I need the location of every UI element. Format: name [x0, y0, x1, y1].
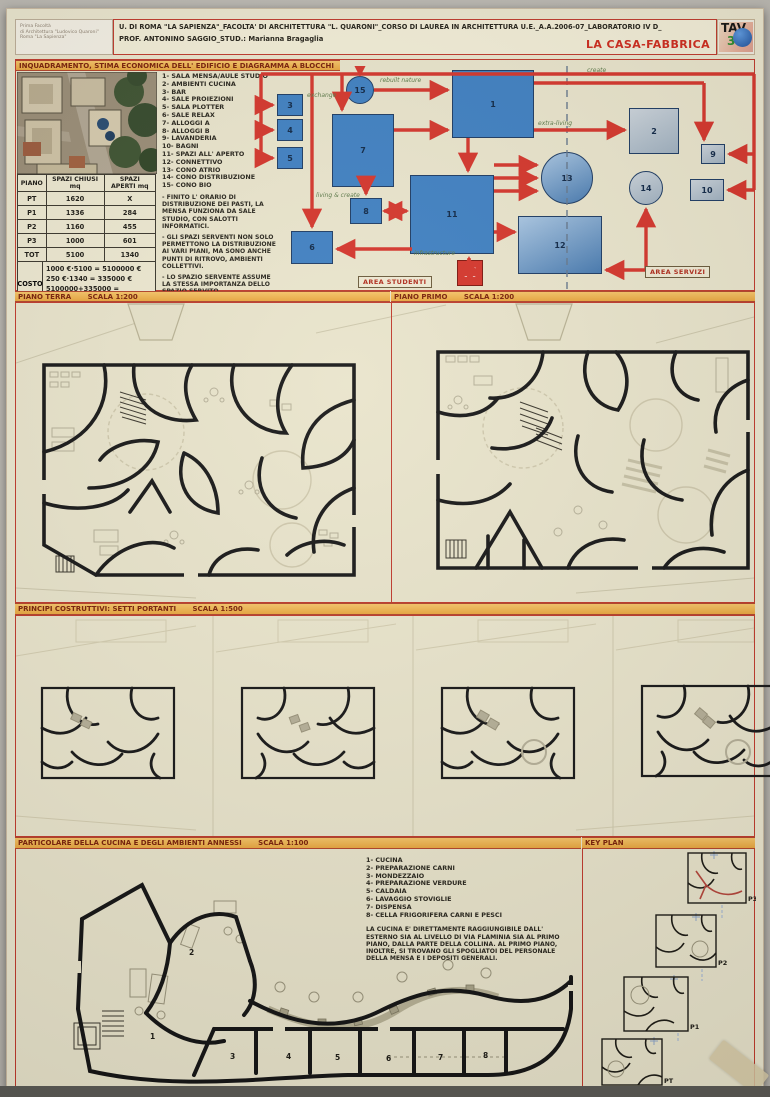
- section4-title: PRINCIPI COSTRUTTIVI: SETTI PORTANTI: [18, 605, 176, 613]
- piano-primo-plan: [428, 340, 758, 585]
- annotation-infrastructure: infrastructure: [414, 250, 455, 257]
- setti-section: [15, 615, 755, 837]
- section-inquadramento: INQUADRAMENTO, STIMA ECONOMICA DELL' EDI…: [15, 59, 755, 291]
- costo-line2: 250 €·1340 = 335000 €: [46, 274, 152, 284]
- table-header-row: PIANO SPAZI CHIUSI mq SPAZI APERTI mq: [18, 175, 156, 192]
- university-stamp: Prima Facoltà di Architettura "Ludovico …: [15, 19, 113, 55]
- spaces-table-wrap: PIANO SPAZI CHIUSI mq SPAZI APERTI mq PT…: [17, 174, 156, 307]
- setti-plan-pt: [38, 684, 178, 784]
- section5-scale: SCALA 1:100: [258, 839, 308, 847]
- section2-scale: SCALA 1:200: [88, 293, 138, 301]
- table-surface: [0, 1086, 770, 1097]
- plans-divider: [391, 303, 392, 602]
- keyplan-label-p3: P3: [748, 895, 756, 903]
- cell: 1620: [46, 192, 104, 206]
- aerial-site-photo: [17, 72, 157, 174]
- block-diagram: 3 4 5 15 7 1 2 9 10 13 14 8 11 6 12 M: [254, 66, 756, 292]
- table-row: P1 1336 284: [18, 206, 156, 220]
- keyplan-divider: [582, 849, 583, 1087]
- col-chiusi: SPAZI CHIUSI mq: [46, 175, 104, 192]
- kitchen-room-6: 6: [386, 1054, 391, 1063]
- section3-scale: SCALA 1:200: [464, 293, 514, 301]
- cell: 5100: [46, 248, 104, 262]
- cell: 1160: [46, 220, 104, 234]
- section2-title: PIANO TERRA: [18, 293, 71, 301]
- keyplan-label-p1: P1: [690, 1023, 700, 1031]
- spaces-table: PIANO SPAZI CHIUSI mq SPAZI APERTI mq PT…: [17, 174, 156, 262]
- table-row: TOT 5100 1340: [18, 248, 156, 262]
- presentation-board: Prima Facoltà di Architettura "Ludovico …: [6, 8, 764, 1090]
- kitchen-room-2: 2: [189, 948, 194, 957]
- setti-plan-p3: [638, 682, 770, 782]
- kitchen-room-8: 8: [483, 1051, 488, 1060]
- keyplan-label-p2: P2: [718, 959, 727, 967]
- annotation-create: create: [587, 67, 606, 74]
- cell: P3: [18, 234, 47, 248]
- costo-line1: 1000 €·5100 = 5100000 €: [46, 264, 152, 274]
- project-title: LA CASA-FABBRICA: [586, 38, 710, 51]
- header-text-box: U. DI ROMA "LA SAPIENZA"_FACOLTA' DI ARC…: [113, 19, 717, 55]
- cell: 455: [104, 220, 155, 234]
- section3-title: PIANO PRIMO: [394, 293, 447, 301]
- section2-header: PIANO TERRA SCALA 1:200: [15, 291, 390, 302]
- kitchen-paragraph: LA CUCINA E' DIRETTAMENTE RAGGIUNGIBILE …: [366, 926, 576, 962]
- kitchen-room-5: 5: [335, 1053, 340, 1062]
- table-row: P3 1000 601: [18, 234, 156, 248]
- kitchen-room-4: 4: [286, 1052, 291, 1061]
- cell: P1: [18, 206, 47, 220]
- piano-terra-plan: [34, 340, 364, 595]
- area-studenti-label: AREA STUDENTI: [358, 276, 432, 288]
- col-aperti: SPAZI APERTI mq: [104, 175, 155, 192]
- cell: 601: [104, 234, 155, 248]
- cell: PT: [18, 192, 47, 206]
- diagram-flow-lines: [254, 66, 756, 292]
- col-piano: PIANO: [18, 175, 47, 192]
- section4-scale: SCALA 1:500: [193, 605, 243, 613]
- kitchen-room-7: 7: [438, 1053, 443, 1062]
- section6-header: KEY PLAN: [582, 837, 755, 849]
- cell: 1340: [104, 248, 155, 262]
- stamp-line: Roma "La Sapienza": [20, 35, 108, 41]
- section5-header: PARTICOLARE DELLA CUCINA E DEGLI AMBIENT…: [15, 837, 581, 849]
- cell: X: [104, 192, 155, 206]
- setti-plan-p1: [238, 684, 378, 784]
- annotation-rebuilt-nature: rebuilt nature: [380, 77, 421, 84]
- kitchen-room-1: 1: [150, 1032, 155, 1041]
- cell: TOT: [18, 248, 47, 262]
- cell: 1000: [46, 234, 104, 248]
- cell: 284: [104, 206, 155, 220]
- tav-logo-sphere: [733, 28, 752, 47]
- tav-logo: TAV 3: [717, 19, 755, 55]
- setti-plan-p2: [438, 684, 578, 784]
- keyplan-label-pt: PT: [664, 1077, 674, 1085]
- table-row: PT 1620 X: [18, 192, 156, 206]
- area-servizi-label: AREA SERVIZI: [645, 266, 710, 278]
- section5-title: PARTICOLARE DELLA CUCINA E DEGLI AMBIENT…: [18, 839, 242, 847]
- table-row: P2 1160 455: [18, 220, 156, 234]
- title-block: Prima Facoltà di Architettura "Ludovico …: [15, 19, 755, 55]
- kitchen-section: 1 2 3 4 5 6 7 8 1- CUCINA 2- PREPARAZION…: [15, 849, 755, 1089]
- photographed-presentation-board: { "board": { "stamp": { "line1": "Prima …: [0, 0, 770, 1097]
- cell: P2: [18, 220, 47, 234]
- annotation-extra-living: extra-living: [538, 120, 572, 127]
- kitchen-legend: 1- CUCINA 2- PREPARAZIONE CARNI 3- MONDE…: [366, 857, 581, 962]
- kitchen-item: 8- CELLA FRIGORIFERA CARNI E PESCI: [366, 912, 581, 920]
- section4-header: PRINCIPI COSTRUTTIVI: SETTI PORTANTI SCA…: [15, 603, 755, 615]
- cell: 1336: [46, 206, 104, 220]
- section6-title: KEY PLAN: [585, 839, 624, 847]
- kitchen-room-3: 3: [230, 1052, 235, 1061]
- section3-header: PIANO PRIMO SCALA 1:200: [391, 291, 755, 302]
- plans-section: [15, 302, 755, 603]
- annotation-exchange: exchange: [307, 92, 336, 99]
- header-line1: U. DI ROMA "LA SAPIENZA"_FACOLTA' DI ARC…: [119, 23, 711, 31]
- annotation-living-create: living & create: [316, 192, 360, 199]
